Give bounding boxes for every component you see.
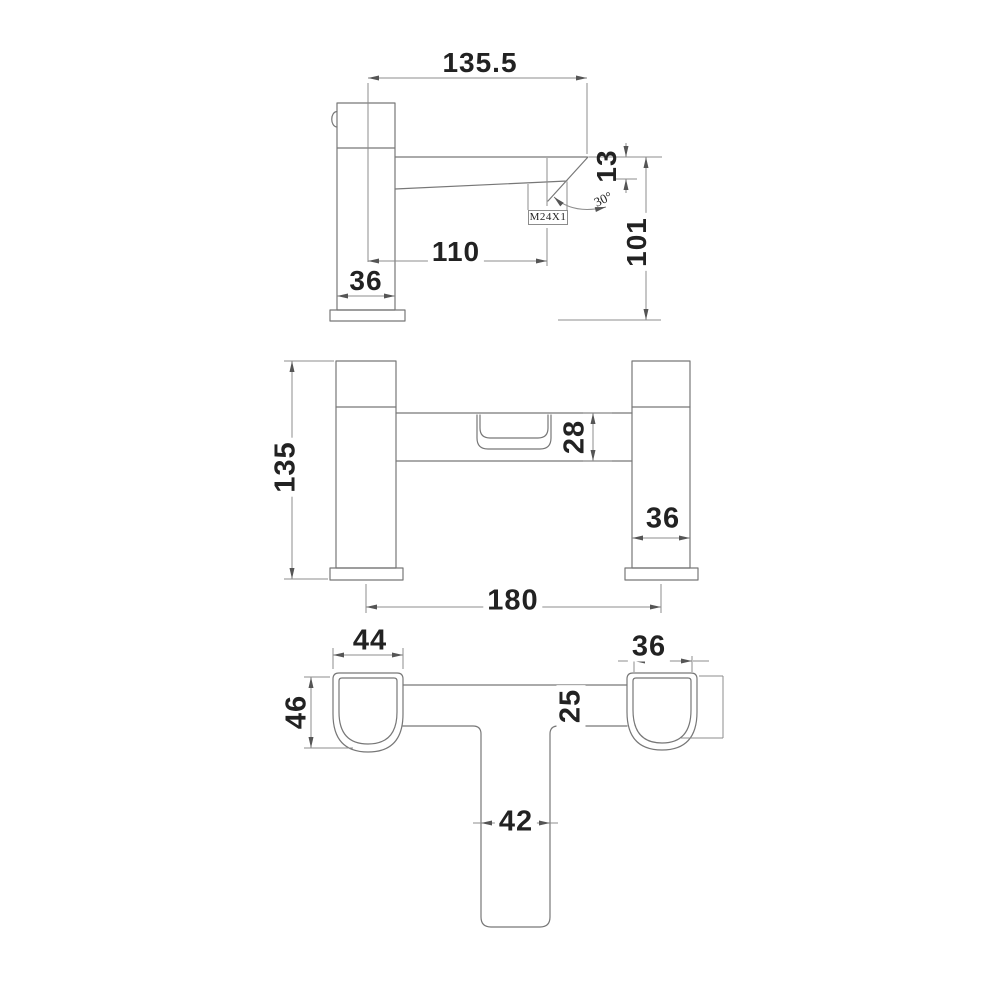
dim-side-clearance: 101 xyxy=(623,213,651,271)
dim-plan-spout-width: 42 xyxy=(495,808,537,837)
right-foot-inner xyxy=(633,678,691,743)
right-base-plate xyxy=(625,568,698,580)
front-view xyxy=(284,361,698,613)
plan-view xyxy=(304,648,723,927)
drawing-sheet: 135.5 13 101 110 36 M24X1 30° 135 28 36 … xyxy=(0,0,1000,1000)
thread-label: M24X1 xyxy=(530,212,567,223)
dim-side-projection: 110 xyxy=(428,238,484,266)
left-pillar xyxy=(336,361,396,568)
spout-front-inner xyxy=(480,415,548,438)
dim-plan-right-width: 36 xyxy=(628,633,670,662)
dim-front-pillar-width: 36 xyxy=(646,505,680,534)
spout-outline xyxy=(395,157,588,201)
left-foot-inner xyxy=(339,678,397,744)
left-foot-outer xyxy=(333,673,403,752)
dim-plan-depth: 46 xyxy=(283,695,312,729)
left-base-plate xyxy=(330,568,403,580)
cross-body xyxy=(396,413,632,461)
dim-front-height: 135 xyxy=(272,437,301,496)
base-plate xyxy=(330,310,405,321)
drawing-linework xyxy=(0,0,1000,1000)
right-pillar xyxy=(632,361,690,568)
handle-button xyxy=(332,112,337,128)
dim-side-tip-height: 13 xyxy=(593,149,621,182)
thread-label-box: M24X1 xyxy=(528,210,568,225)
dim-side-overall-reach: 135.5 xyxy=(442,49,517,77)
dim-side-body-width: 36 xyxy=(349,267,382,295)
dim-front-centres: 180 xyxy=(483,587,542,616)
dim-plan-left-width: 44 xyxy=(353,627,387,656)
dim-front-body-depth: 28 xyxy=(561,416,590,458)
spout-front-outer xyxy=(477,415,551,449)
dim-plan-bridge-depth: 25 xyxy=(557,685,586,727)
